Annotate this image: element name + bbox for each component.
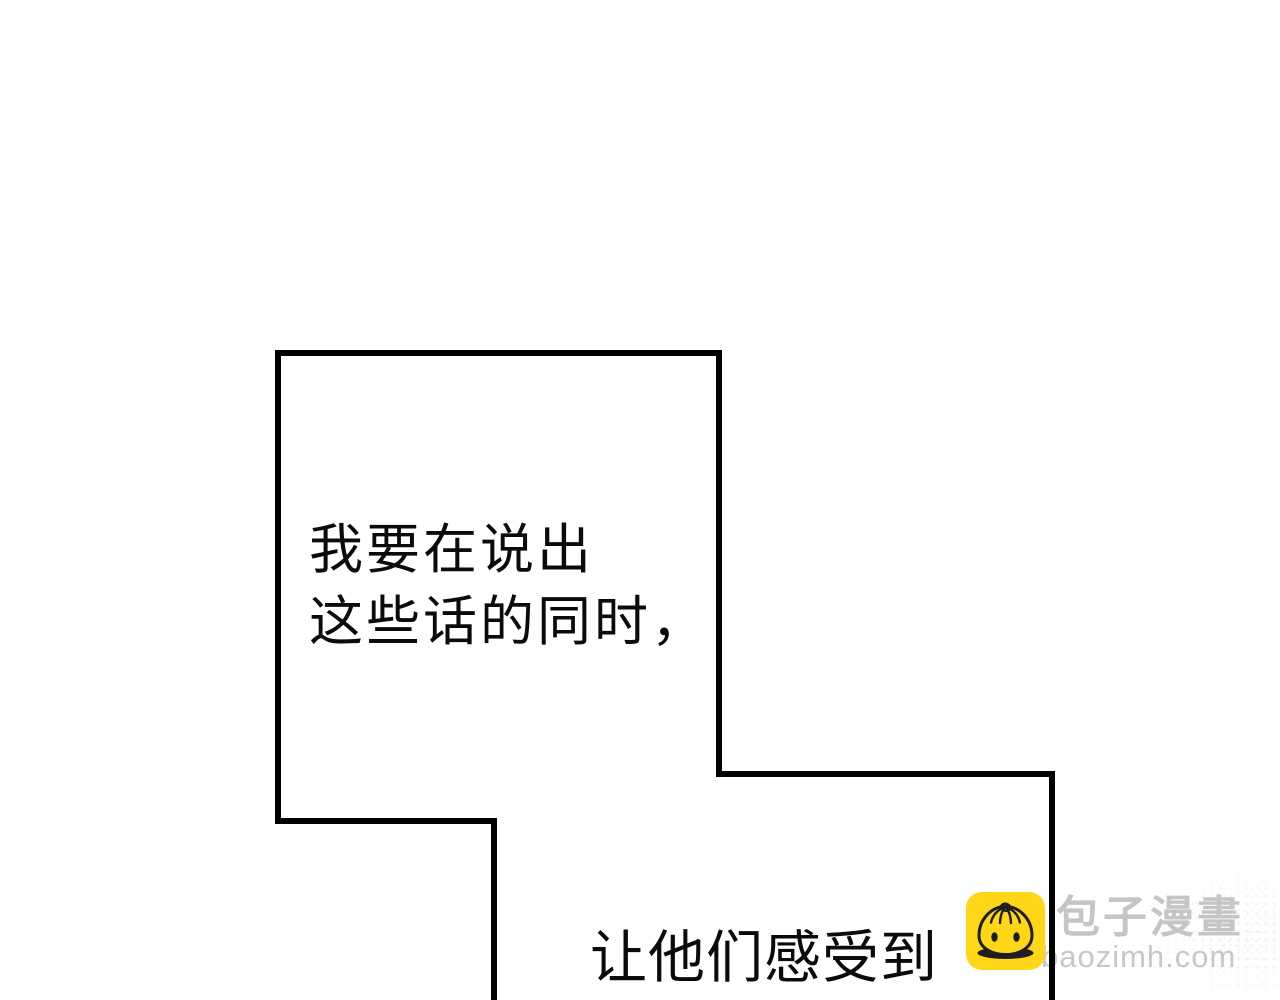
watermark: 包子漫畫 baozimh.com (0, 0, 1280, 1000)
watermark-site-url: baozimh.com (1041, 941, 1236, 972)
baozi-bun-icon (966, 892, 1045, 970)
baozi-bun-outline (979, 907, 1032, 955)
watermark-site-name: 包子漫畫 (1056, 896, 1244, 940)
comic-page: 我要在说出 这些话的同时， 让他们感受到 包子漫畫 baozimh.com (0, 0, 1280, 1000)
baozi-right-eye (1013, 932, 1019, 942)
baozi-left-eye (991, 932, 997, 942)
